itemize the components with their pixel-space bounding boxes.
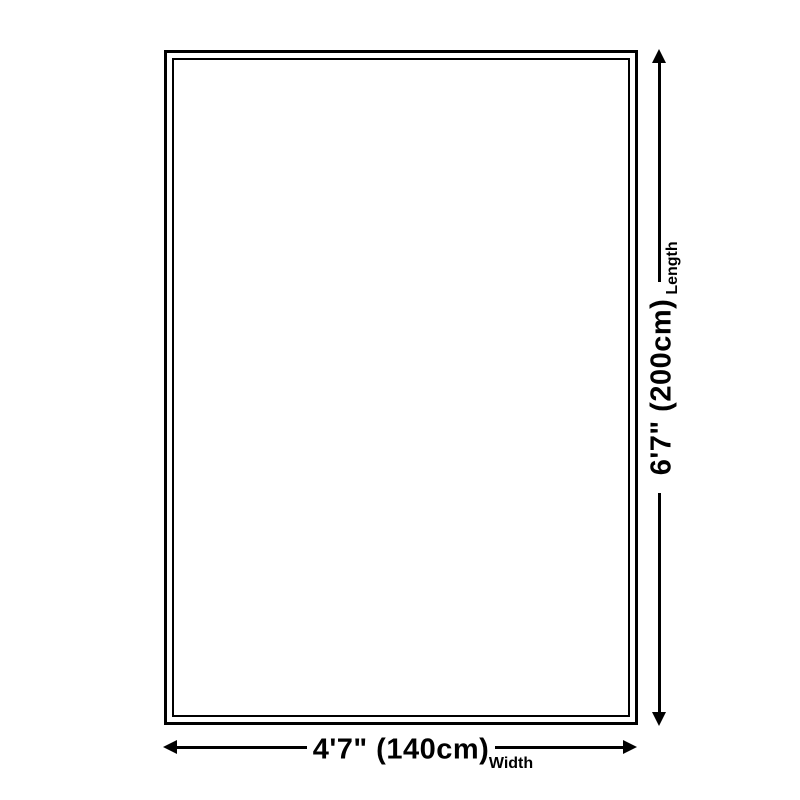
length-value: 6'7" (200cm) — [646, 299, 679, 476]
length-dimension-line-top — [658, 62, 661, 282]
rug-inner-border — [172, 58, 630, 717]
arrow-left-icon — [163, 740, 177, 754]
width-dimension-line-left — [176, 746, 307, 749]
arrow-up-icon — [652, 49, 666, 63]
rug-outline — [164, 50, 638, 725]
length-dimension-line-bottom — [658, 493, 661, 712]
width-value: 4'7" (140cm) — [313, 734, 490, 767]
width-dimension-line-right — [495, 746, 624, 749]
arrow-down-icon — [652, 712, 666, 726]
arrow-right-icon — [623, 740, 637, 754]
length-label: Length — [664, 241, 682, 294]
dimension-diagram: Length 6'7" (200cm) 4'7" (140cm) Width — [0, 0, 800, 800]
width-label: Width — [489, 755, 533, 773]
